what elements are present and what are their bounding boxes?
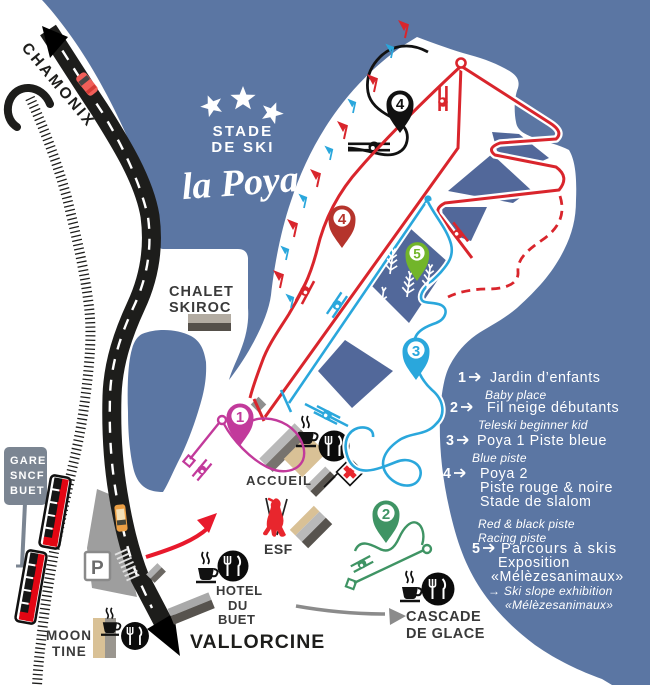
svg-text:ACCUEIL: ACCUEIL (246, 473, 312, 488)
svg-text:Teleski beginner kid: Teleski beginner kid (478, 418, 588, 432)
svg-text:2: 2 (382, 506, 390, 523)
svg-text:3: 3 (446, 433, 454, 449)
svg-text:Blue piste: Blue piste (472, 451, 527, 465)
svg-text:DU: DU (228, 598, 248, 613)
svg-text:5: 5 (413, 247, 421, 262)
svg-text:HOTEL: HOTEL (216, 583, 263, 598)
svg-text:CHALET: CHALET (169, 284, 234, 300)
svg-text:STADE: STADE (213, 123, 274, 140)
svg-text:→ Ski slope exhibition: → Ski slope exhibition (488, 584, 613, 598)
svg-text:CASCADE: CASCADE (406, 609, 481, 625)
svg-text:Red & black piste: Red & black piste (478, 517, 575, 531)
svg-text:3: 3 (412, 343, 420, 360)
svg-text:1: 1 (236, 409, 244, 426)
svg-text:Stade de slalom: Stade de slalom (480, 494, 592, 510)
svg-text:Poya 1 Piste bleue: Poya 1 Piste bleue (477, 433, 607, 449)
svg-text:«Mélèzesanimaux»: «Mélèzesanimaux» (505, 598, 613, 612)
svg-text:5: 5 (472, 541, 480, 557)
svg-text:GARE: GARE (10, 455, 47, 467)
svg-text:4: 4 (443, 466, 451, 482)
svg-text:ESF: ESF (264, 541, 293, 557)
svg-text:Fil neige débutants: Fil neige débutants (487, 400, 619, 416)
svg-text:SNCF: SNCF (10, 470, 45, 482)
svg-text:DE GLACE: DE GLACE (406, 626, 485, 642)
svg-text:P: P (91, 558, 104, 579)
svg-text:BUET: BUET (10, 485, 45, 497)
svg-text:«Mélèzesanimaux»: «Mélèzesanimaux» (491, 569, 624, 585)
svg-text:4: 4 (396, 96, 405, 113)
svg-text:DE SKI: DE SKI (211, 139, 274, 156)
svg-text:TINE: TINE (52, 644, 87, 659)
svg-text:BUET: BUET (218, 612, 255, 627)
svg-text:MOON: MOON (46, 628, 92, 643)
svg-text:VALLORCINE: VALLORCINE (190, 631, 325, 653)
svg-text:SKIROC: SKIROC (169, 300, 231, 316)
svg-text:2: 2 (450, 400, 458, 416)
svg-text:4: 4 (338, 211, 347, 228)
svg-text:Jardin d’enfants: Jardin d’enfants (490, 370, 601, 386)
svg-text:1: 1 (458, 370, 466, 386)
svg-text:la Poya: la Poya (180, 158, 300, 208)
